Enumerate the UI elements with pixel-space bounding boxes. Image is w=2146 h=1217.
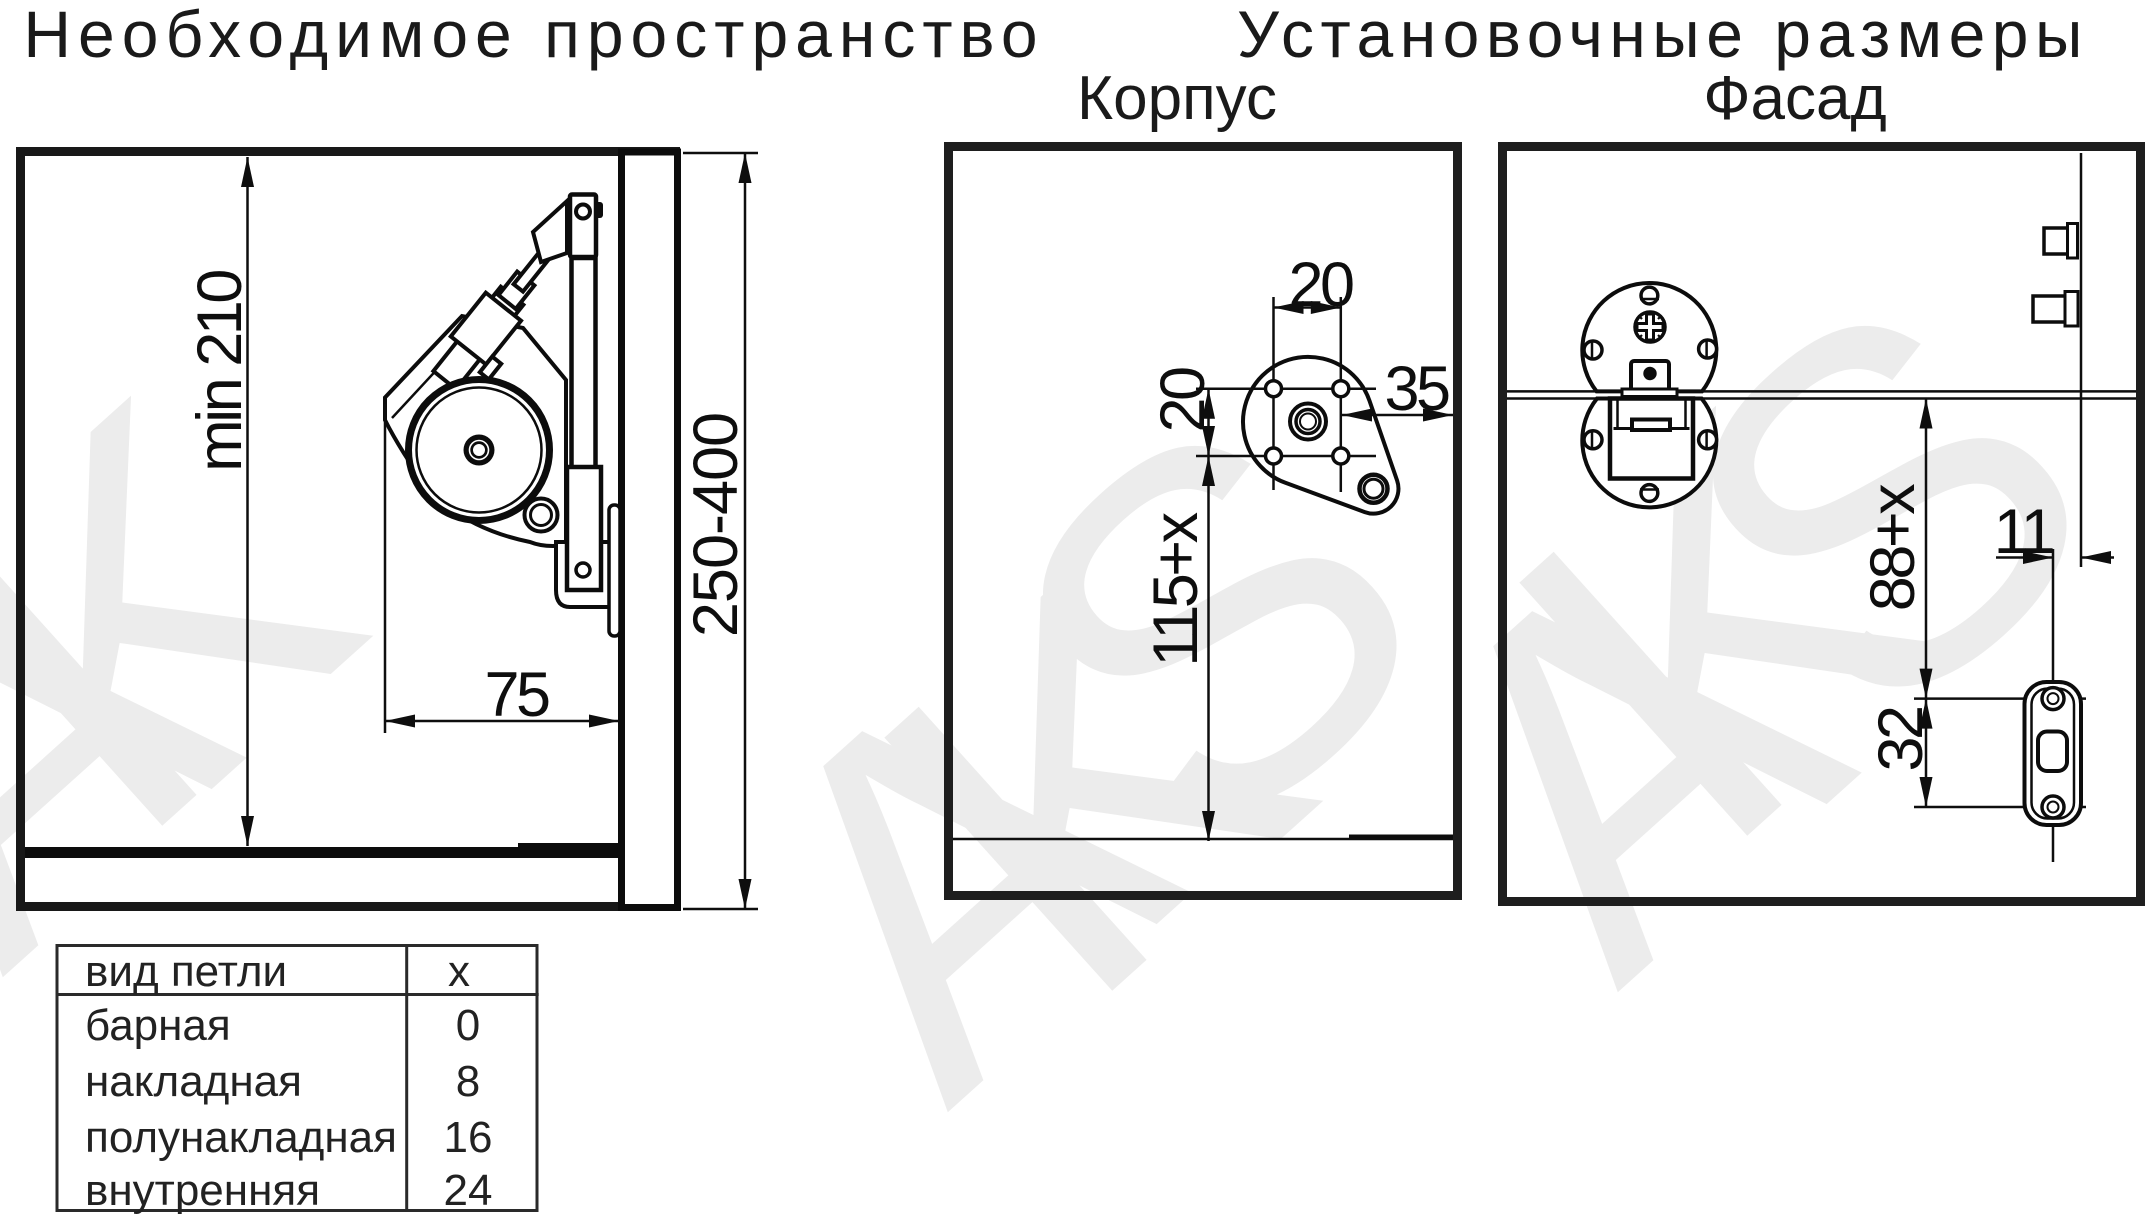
- svg-text:полунакладная: полунакладная: [85, 1113, 397, 1162]
- svg-text:88+x: 88+x: [1858, 484, 1928, 611]
- svg-text:Корпус: Корпус: [1077, 64, 1277, 133]
- svg-text:Фасад: Фасад: [1703, 64, 1886, 133]
- svg-text:11: 11: [1994, 497, 2053, 567]
- svg-text:0: 0: [456, 1001, 480, 1050]
- svg-text:35: 35: [1384, 354, 1449, 424]
- svg-text:внутренняя: внутренняя: [85, 1166, 320, 1215]
- svg-text:250-400: 250-400: [681, 413, 751, 637]
- svg-text:Необходимое пространство: Необходимое пространство: [23, 0, 1044, 71]
- svg-text:8: 8: [456, 1057, 480, 1106]
- svg-text:20: 20: [1288, 250, 1353, 320]
- svg-text:вид петли: вид петли: [85, 947, 287, 996]
- svg-text:min 210: min 210: [185, 271, 255, 472]
- svg-text:24: 24: [444, 1166, 493, 1215]
- svg-text:Установочные размеры: Установочные размеры: [1237, 0, 2089, 71]
- svg-text:32: 32: [1866, 708, 1936, 772]
- svg-text:115+x: 115+x: [1141, 512, 1211, 666]
- svg-text:накладная: накладная: [85, 1057, 302, 1106]
- svg-text:x: x: [448, 947, 470, 996]
- svg-text:75: 75: [484, 660, 549, 730]
- svg-text:20: 20: [1148, 368, 1218, 433]
- svg-text:16: 16: [444, 1113, 493, 1162]
- svg-text:барная: барная: [85, 1001, 231, 1050]
